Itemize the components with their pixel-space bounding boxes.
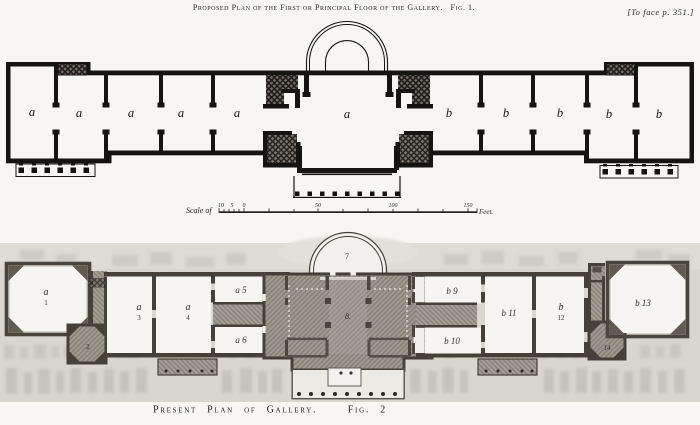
svg-text:b: b [559,302,564,313]
svg-text:b: b [503,106,509,120]
svg-text:100: 100 [389,203,398,209]
svg-text:b 10: b 10 [444,336,460,346]
svg-text:Scale of: Scale of [186,206,213,215]
svg-text:a 6: a 6 [235,335,247,345]
svg-text:Proposed Plan of the First or: Proposed Plan of the First or Principal … [193,3,475,12]
svg-text:Present Plan of Gallery. Fig: Present Plan of Gallery. Fig. 2 [153,405,387,416]
svg-text:12: 12 [558,314,566,322]
svg-text:1: 1 [44,299,48,307]
svg-text:a: a [234,106,240,120]
svg-text:b: b [656,107,662,121]
svg-text:a: a [44,287,49,298]
svg-text:4: 4 [186,314,190,322]
svg-text:b: b [606,107,612,121]
svg-text:a: a [137,302,142,313]
svg-text:a: a [128,106,134,120]
svg-text:b 9: b 9 [446,286,458,296]
svg-text:150: 150 [464,203,473,209]
svg-text:0: 0 [243,203,246,209]
svg-text:b: b [557,106,563,120]
svg-text:3: 3 [137,314,141,322]
svg-text:a: a [186,302,191,313]
svg-text:a: a [344,107,350,121]
svg-text:7: 7 [345,252,349,261]
svg-text:2: 2 [86,343,90,351]
svg-text:a: a [178,106,184,120]
svg-text:[To face p. 351.]: [To face p. 351.] [627,7,694,17]
svg-text:Feet.: Feet. [478,208,493,216]
svg-text:5: 5 [231,203,234,209]
svg-text:a: a [76,106,82,120]
svg-text:8.: 8. [345,312,351,321]
svg-text:14: 14 [604,344,612,352]
svg-text:b 13: b 13 [635,298,651,308]
svg-text:a: a [29,105,35,119]
svg-text:b 11: b 11 [501,308,516,318]
svg-text:a 5: a 5 [235,285,247,295]
svg-text:50: 50 [315,203,321,209]
svg-text:b: b [446,106,452,120]
svg-text:10: 10 [218,203,224,209]
